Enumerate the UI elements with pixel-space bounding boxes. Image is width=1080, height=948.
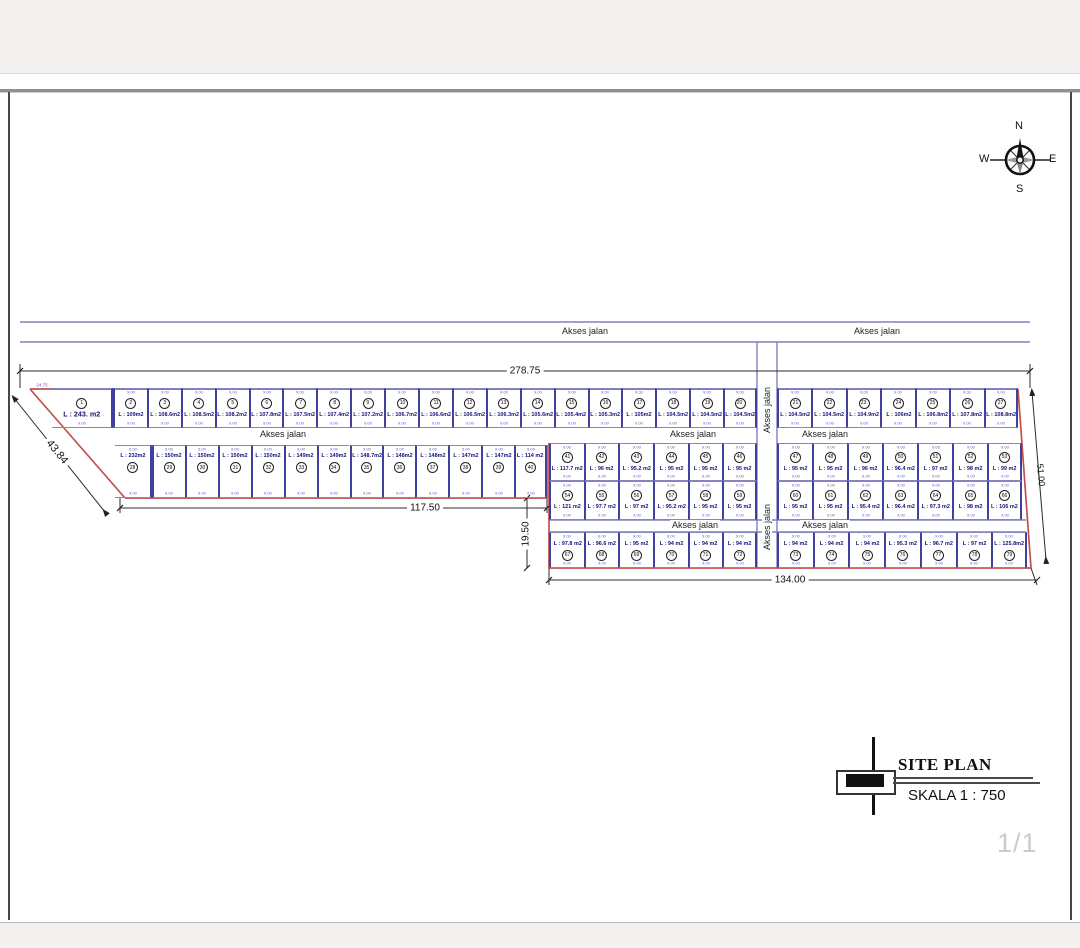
plot-number-badge: 78	[969, 550, 980, 561]
cell-top-dim: 9.00	[702, 483, 710, 487]
plot-number-badge: 24	[893, 398, 904, 409]
plot-number-badge: 69	[631, 550, 642, 561]
plot-number-badge: 23	[859, 398, 870, 409]
plot-area-label: L : 125.8m2	[994, 541, 1024, 547]
cell-top-dim: 9.00	[963, 390, 971, 394]
plot-cell-23: 9.0023L : 104.9m29.00	[846, 388, 880, 428]
plot-cell-15: 9.0015L : 105.4m29.00	[554, 388, 588, 428]
plot-area-label: L : 150m2	[157, 453, 182, 459]
plot-area-label: L : 94 m2	[855, 541, 879, 547]
cell-bottom-dim: 9.00	[534, 421, 542, 425]
plot-number-badge: 73	[790, 550, 801, 561]
plot-number-badge: 64	[930, 490, 941, 501]
plot-cell-27: 9.0027L : 108.8m29.00	[984, 388, 1018, 428]
plot-cell-52: 9.0052L : 98 m29.00	[952, 443, 987, 481]
plot-cell-30: 9.0030L : 150m29.00	[185, 445, 218, 498]
plot-area-label: L : 117.7 m2	[552, 466, 583, 472]
plot-area-label: L : 97 m2	[963, 541, 987, 547]
cell-bottom-dim: 9.00	[598, 513, 606, 517]
cell-bottom-dim: 9.00	[500, 421, 508, 425]
plot-area-label: L : 150m2	[256, 453, 281, 459]
plot-cell-3: 9.003L : 108.6m29.00	[147, 388, 181, 428]
plot-cell-50: 9.0050L : 96.4 m29.00	[882, 443, 917, 481]
plot-cell-32: 9.0032L : 150m29.00	[251, 445, 284, 498]
cell-bottom-dim: 9.00	[736, 421, 744, 425]
plot-area-label: L : 108.5m2	[184, 412, 214, 418]
plot-cell-56: 9.0056L : 97 m29.00	[618, 481, 653, 520]
cell-top-dim: 9.00	[462, 447, 470, 451]
cell-top-dim: 9.00	[598, 445, 606, 449]
cell-bottom-dim: 9.00	[598, 561, 606, 565]
plot-cell-48: 9.0048L : 95 m29.00	[812, 443, 847, 481]
plot-area-label: L : 107.2m2	[353, 412, 383, 418]
plot-area-label: L : 104.5m2	[815, 412, 845, 418]
plot-number-badge: 44	[666, 452, 677, 463]
plot-cell-39: 9.0039L : 147m29.00	[481, 445, 514, 498]
plot-number-badge: 12	[464, 398, 475, 409]
cell-bottom-dim: 9.00	[929, 421, 937, 425]
plot-number-badge: 22	[824, 398, 835, 409]
plot-area-label: L : 105.4m2	[557, 412, 587, 418]
plot-number-badge: 25	[927, 398, 938, 409]
plot-area-label: L : 99 m2	[993, 466, 1017, 472]
plot-cell-73: 9.0073L : 94 m29.00	[777, 532, 813, 568]
plot-cell-61: 9.0061L : 95 m29.00	[812, 481, 847, 520]
plot-cell-43: 9.0043L : 95.2 m29.00	[618, 443, 653, 481]
cell-top-dim: 9.00	[534, 390, 542, 394]
cell-top-dim: 9.00	[195, 390, 203, 394]
plot-area-label: L : 104.9m2	[849, 412, 879, 418]
plot-number-badge: 31	[230, 462, 241, 473]
plot-area-label: L : 108.8m2	[986, 412, 1016, 418]
road-label: Akses jalan	[800, 429, 850, 439]
cell-top-dim: 9.00	[495, 447, 503, 451]
plot-number-badge: 63	[895, 490, 906, 501]
plot-area-label: L : 121 m2	[554, 504, 581, 510]
plot-area-label: L : 105.3m2	[591, 412, 621, 418]
plot-number-badge: 50	[895, 452, 906, 463]
plot-area-label: L : 150m2	[190, 453, 215, 459]
plot-number-badge: 14	[532, 398, 543, 409]
cell-top-dim: 9.00	[598, 483, 606, 487]
cell-top-dim: 9.00	[563, 445, 571, 449]
plot-area-label: L : 96.4 m2	[886, 504, 914, 510]
plot-area-label: L : 94 m2	[784, 541, 808, 547]
plot-number-badge: 4	[193, 398, 204, 409]
plot-number-badge: 45	[700, 452, 711, 463]
cell-top-dim: 9.00	[792, 445, 800, 449]
road-label: Akses jalan	[258, 429, 308, 439]
plot-area-label: L : 107.5m2	[285, 412, 315, 418]
dim-left-diagonal: 43.84	[42, 435, 72, 469]
cell-bottom-dim: 9.00	[161, 421, 169, 425]
plot-number-badge: 57	[666, 490, 677, 501]
plot-area-label: L : 96 m2	[590, 466, 614, 472]
cell-bottom-dim: 9.00	[860, 421, 868, 425]
cell-top-dim: 9.00	[935, 534, 943, 538]
plot-area-label: L : 95 m2	[625, 541, 649, 547]
plot-area-label: L : 95 m2	[694, 466, 718, 472]
plot-number-badge: 38	[460, 462, 471, 473]
cell-bottom-dim: 9.00	[667, 561, 675, 565]
plot-number-badge: 71	[700, 550, 711, 561]
cell-top-dim: 9.00	[364, 390, 372, 394]
cell-bottom-dim: 9.00	[195, 421, 203, 425]
road-label: Akses jalan	[800, 520, 850, 530]
plot-cell-74: 9.0074L : 94 m29.00	[813, 532, 849, 568]
plot-area-label: L : 97 m2	[625, 504, 649, 510]
plot-area-label: L : 95.2 m2	[622, 466, 650, 472]
cell-top-dim: 9.00	[161, 390, 169, 394]
cell-top-dim: 9.00	[792, 483, 800, 487]
plot-number-badge: 27	[995, 398, 1006, 409]
plot-cell-4: 9.004L : 108.5m29.00	[181, 388, 215, 428]
cell-bottom-dim: 9.00	[527, 491, 535, 495]
cell-bottom-dim: 9.00	[736, 513, 744, 517]
plot-cell-29: 9.0029L : 150m29.00	[152, 445, 185, 498]
plot-area-label: L : 94 m2	[820, 541, 844, 547]
site-plan-drawing: 1L : 243. m29.009.002L : 109m29.009.003L…	[0, 0, 1080, 947]
plot-number-badge: 35	[361, 462, 372, 473]
plot-number-badge: 68	[596, 550, 607, 561]
cell-top-dim: 9.00	[330, 390, 338, 394]
plot-number-badge: 46	[734, 452, 745, 463]
plot-area-label: L : 95 m2	[784, 466, 808, 472]
plot-number-badge: 20	[735, 398, 746, 409]
cell-top-dim: 9.00	[1001, 445, 1009, 449]
cell-top-dim: 9.00	[895, 390, 903, 394]
compass-south-label: S	[1016, 183, 1023, 195]
plot-area-label: L : 148.7m2	[352, 453, 382, 459]
plot-number-badge: 34	[329, 462, 340, 473]
plot-area-label: L : 105m2	[627, 412, 652, 418]
cell-bottom-dim: 9.00	[78, 421, 86, 425]
plot-number-badge: 6	[261, 398, 272, 409]
plot-area-label: L : 94 m2	[694, 541, 718, 547]
title-block-logo-fill	[846, 774, 884, 787]
plot-cell-16: 9.0016L : 105.3m29.00	[588, 388, 622, 428]
cell-bottom-dim: 9.00	[330, 491, 338, 495]
plot-area-label: L : 96.6 m2	[588, 541, 616, 547]
cell-top-dim: 9.00	[899, 534, 907, 538]
plot-number-badge: 13	[498, 398, 509, 409]
plot-area-label: L : 109m2	[118, 412, 143, 418]
plot-area-label: L : 108.6m2	[150, 412, 180, 418]
cell-top-dim: 9.00	[667, 445, 675, 449]
cell-bottom-dim: 9.00	[166, 491, 174, 495]
plot-number-badge: 55	[596, 490, 607, 501]
plot-number-badge: 19	[702, 398, 713, 409]
cell-bottom-dim: 9.00	[330, 421, 338, 425]
cell-top-dim: 9.00	[264, 447, 272, 451]
cell-bottom-dim: 9.00	[297, 491, 305, 495]
plot-cell-9: 9.009L : 107.2m29.00	[350, 388, 384, 428]
cell-bottom-dim: 9.00	[598, 474, 606, 478]
cell-bottom-dim: 9.00	[932, 513, 940, 517]
cell-top-dim: 9.00	[330, 447, 338, 451]
plot-number-badge: 5	[227, 398, 238, 409]
cell-bottom-dim: 9.00	[967, 474, 975, 478]
plot-number-badge: 70	[666, 550, 677, 561]
plot-area-label: L : 106.6m2	[421, 412, 451, 418]
plot-cell-6: 9.006L : 107.8m29.00	[249, 388, 283, 428]
drawing-scale: SKALA 1 : 750	[908, 787, 1006, 804]
cell-bottom-dim: 9.00	[899, 561, 907, 565]
cell-top-dim: 9.00	[792, 534, 800, 538]
cell-top-dim: 9.00	[702, 534, 710, 538]
cell-bottom-dim: 9.00	[667, 513, 675, 517]
plot-number-badge: 16	[600, 398, 611, 409]
plot-cell-18: 9.0018L : 104.5m29.00	[655, 388, 689, 428]
plot-cell-31: 9.0031L : 150m29.00	[218, 445, 251, 498]
plot-cell-38: 9.0038L : 147m29.00	[448, 445, 481, 498]
cell-top-dim: 9.00	[703, 390, 711, 394]
cell-bottom-dim: 9.00	[667, 474, 675, 478]
cell-top-dim: 9.00	[827, 483, 835, 487]
cell-bottom-dim: 9.00	[1005, 561, 1013, 565]
cell-top-dim: 9.00	[929, 390, 937, 394]
plot-cell-17: 9.0017L : 105m29.00	[621, 388, 655, 428]
plot-number-badge: 65	[965, 490, 976, 501]
plot-cell-24: 9.0024L : 106m29.00	[880, 388, 914, 428]
plot-number-badge: 32	[263, 462, 274, 473]
plot-cell-75: 9.0075L : 94 m29.00	[848, 532, 884, 568]
plot-area-label: L : 104.5m2	[725, 412, 755, 418]
plot-cell-14: 9.0014L : 105.6m29.00	[520, 388, 554, 428]
plot-area-label: L : 96.7 m2	[925, 541, 953, 547]
plot-cell-68: 9.0068L : 96.6 m29.00	[584, 532, 619, 568]
cell-top-dim: 9.00	[263, 390, 271, 394]
cell-bottom-dim: 9.00	[398, 421, 406, 425]
cell-bottom-dim: 9.00	[198, 491, 206, 495]
cell-bottom-dim: 9.00	[792, 474, 800, 478]
cell-top-dim: 9.00	[633, 534, 641, 538]
road-label-vertical: Akses jalan	[762, 502, 772, 552]
plot-cell-41: 9.0041L : 117.7 m29.00	[549, 443, 584, 481]
cell-bottom-dim: 9.00	[736, 561, 744, 565]
plot-area-label: L : 95 m2	[728, 504, 752, 510]
cell-bottom-dim: 9.00	[602, 421, 610, 425]
plot-area-label: L : 106.3m2	[489, 412, 519, 418]
cell-top-dim: 9.00	[563, 534, 571, 538]
cell-bottom-dim: 9.00	[429, 491, 437, 495]
plot-area-label: L : 106m2	[886, 412, 911, 418]
cell-bottom-dim: 9.00	[967, 513, 975, 517]
cell-top-dim: 9.00	[827, 445, 835, 449]
plot-number-badge: 26	[962, 398, 973, 409]
cell-top-dim: 9.00	[862, 483, 870, 487]
cell-top-dim: 9.00	[997, 390, 1005, 394]
plot-number-badge: 62	[860, 490, 871, 501]
plot-number-badge: 18	[668, 398, 679, 409]
plot-area-label: L : 95 m2	[659, 466, 683, 472]
plot-number-badge: 2	[125, 398, 136, 409]
plot-number-badge: 1	[76, 398, 87, 409]
cell-top-dim: 9.00	[229, 390, 237, 394]
cell-top-dim: 9.00	[791, 390, 799, 394]
plot-cell-66: 9.0066L : 106 m29.00	[987, 481, 1022, 520]
cell-bottom-dim: 9.00	[364, 421, 372, 425]
cell-bottom-dim: 9.00	[263, 421, 271, 425]
plot-cell-51: 9.0051L : 97 m29.00	[917, 443, 952, 481]
plot-cell-7: 9.007L : 107.5m29.00	[282, 388, 316, 428]
road-label: Akses jalan	[670, 520, 720, 530]
cell-top-dim: 9.00	[363, 447, 371, 451]
plot-cell-64: 9.0064L : 97.3 m29.00	[917, 481, 952, 520]
cell-bottom-dim: 9.00	[895, 421, 903, 425]
cell-bottom-dim: 9.00	[669, 421, 677, 425]
plot-cell-67: 9.0067L : 97.8 m29.00	[549, 532, 584, 568]
plot-cell-76: 9.0076L : 95.3 m29.00	[884, 532, 920, 568]
plot-cell-11: 9.0011L : 106.6m29.00	[418, 388, 452, 428]
cell-bottom-dim: 9.00	[231, 491, 239, 495]
plot-area-label: L : 97.8 m2	[553, 541, 581, 547]
plot-cell-44: 9.0044L : 95 m29.00	[653, 443, 688, 481]
plot-number-badge: 10	[397, 398, 408, 409]
plot-area-label: L : 148m2	[420, 453, 445, 459]
plot-area-label: L : 106.8m2	[918, 412, 948, 418]
cell-bottom-dim: 9.00	[563, 561, 571, 565]
plot-number-badge: 77	[933, 550, 944, 561]
plot-number-badge: 33	[296, 462, 307, 473]
plot-area-label: L : 96 m2	[854, 466, 878, 472]
plot-number-badge: 56	[631, 490, 642, 501]
plot-cell-25: 9.0025L : 106.8m29.00	[915, 388, 949, 428]
plot-cell-8: 9.008L : 107.4m29.00	[316, 388, 350, 428]
dim-right-diagonal: 51.00	[1035, 460, 1047, 489]
plot-cell-26: 9.0026L : 107.8m29.00	[949, 388, 983, 428]
plot-cell-22: 9.0022L : 104.5m29.00	[811, 388, 845, 428]
cell-top-dim: 9.00	[398, 390, 406, 394]
plot-cell-54: 9.0054L : 121 m29.00	[549, 481, 584, 520]
cell-bottom-dim: 9.00	[827, 513, 835, 517]
plot-number-badge: 66	[999, 490, 1010, 501]
cell-bottom-dim: 9.00	[702, 561, 710, 565]
cell-top-dim: 9.00	[297, 447, 305, 451]
plot-area-label: L : 104.5m2	[780, 412, 810, 418]
dim-left-bottom: 117.50	[407, 503, 443, 514]
plot-cell-36: 9.0036L : 148m29.00	[382, 445, 415, 498]
plot-number-badge: 59	[734, 490, 745, 501]
cell-top-dim: 9.00	[1001, 483, 1009, 487]
cell-top-dim: 9.00	[736, 390, 744, 394]
plot-number-badge: 40	[525, 462, 536, 473]
plot-area-label: L : 148m2	[387, 453, 412, 459]
cell-top-dim: 9.00	[897, 445, 905, 449]
plot-cell-63: 9.0063L : 96.4 m29.00	[882, 481, 917, 520]
plot-number-badge: 54	[562, 490, 573, 501]
plot-area-label: L : 95.2 m2	[657, 504, 685, 510]
cell-top-dim: 9.00	[127, 390, 135, 394]
plot-area-label: L : 147m2	[486, 453, 511, 459]
plot-area-label: L : 94 m2	[659, 541, 683, 547]
plot-number-badge: 76	[897, 550, 908, 561]
plot-cell-79: 9.0079L : 125.8m29.00	[991, 532, 1027, 568]
cell-bottom-dim: 9.00	[363, 491, 371, 495]
plot-area-label: L : 95 m2	[784, 504, 808, 510]
road-label: Akses jalan	[668, 429, 718, 439]
cell-top-dim: 9.00	[563, 483, 571, 487]
cell-top-dim: 9.00	[568, 390, 576, 394]
plot-number-badge: 15	[566, 398, 577, 409]
plot-cell-5: 9.005L : 108.2m29.00	[215, 388, 249, 428]
plot-number-badge: 79	[1004, 550, 1015, 561]
cell-bottom-dim: 9.00	[702, 474, 710, 478]
drawing-title: SITE PLAN	[898, 755, 992, 775]
plot-cell-69: 9.0069L : 95 m29.00	[618, 532, 653, 568]
plot-cell-13: 9.0013L : 106.3m29.00	[486, 388, 520, 428]
plot-number-badge: 42	[596, 452, 607, 463]
plot-cell-33: 9.0033L : 149m29.00	[284, 445, 317, 498]
plot-area-label: L : 95 m2	[728, 466, 752, 472]
cell-top-dim: 9.00	[970, 534, 978, 538]
road-label: Akses jalan	[560, 326, 610, 336]
cell-bottom-dim: 9.00	[702, 513, 710, 517]
cell-top-dim: 9.00	[736, 534, 744, 538]
plot-area-label: L : 106.5m2	[455, 412, 485, 418]
cell-bottom-dim: 9.00	[495, 491, 503, 495]
plot-area-label: L : 107.4m2	[319, 412, 349, 418]
dim-top-width: 278.75	[507, 366, 544, 377]
plot-number-badge: 74	[826, 550, 837, 561]
plot-cell-72: 9.0072L : 94 m29.00	[722, 532, 757, 568]
plot-number-badge: 36	[394, 462, 405, 473]
plot-area-label: L : 106 m2	[991, 504, 1018, 510]
cell-bottom-dim: 9.00	[563, 474, 571, 478]
cell-bottom-dim: 9.00	[296, 421, 304, 425]
cell-top-dim: 9.00	[967, 483, 975, 487]
cell-bottom-dim: 9.00	[229, 421, 237, 425]
plot-cell-77: 9.0077L : 96.7 m29.00	[920, 532, 956, 568]
title-underline	[893, 777, 1033, 779]
plot-number-badge: 7	[295, 398, 306, 409]
plot-area-label: L : 98 m2	[959, 504, 983, 510]
plot-number-badge: 75	[862, 550, 873, 561]
plot-area-label: L : 243. m2	[63, 411, 100, 418]
cell-bottom-dim: 9.00	[396, 491, 404, 495]
plot-number-badge: 58	[700, 490, 711, 501]
plot-cell-46: 9.0046L : 95 m29.00	[722, 443, 757, 481]
cell-bottom-dim: 9.00	[792, 561, 800, 565]
plot-area-label: L : 97.3 m2	[921, 504, 949, 510]
plot-area-label: L : 95 m2	[819, 466, 843, 472]
plot-cell-78: 9.0078L : 97 m29.00	[956, 532, 992, 568]
cell-bottom-dim: 9.00	[635, 421, 643, 425]
plot-number-badge: 72	[734, 550, 745, 561]
cell-bottom-dim: 9.00	[791, 421, 799, 425]
compass-west-label: W	[979, 153, 989, 165]
cell-top-dim: 9.00	[466, 390, 474, 394]
plot-area-label: L : 96.4 m2	[886, 466, 914, 472]
plot-area-label: L : 232m2	[120, 453, 145, 459]
plot-area-label: L : 94 m2	[728, 541, 752, 547]
plot-cell-59: 9.0059L : 95 m29.00	[722, 481, 757, 520]
cell-bottom-dim: 9.00	[466, 421, 474, 425]
plot-number-badge: 29	[164, 462, 175, 473]
plot-number-badge: 52	[965, 452, 976, 463]
title-underline	[893, 782, 1040, 784]
cell-top-dim: 9.00	[527, 447, 535, 451]
plot-number-badge: 3	[159, 398, 170, 409]
plot-cell-42: 9.0042L : 96 m29.00	[584, 443, 619, 481]
cell-bottom-dim: 9.00	[264, 491, 272, 495]
cell-bottom-dim: 9.00	[462, 491, 470, 495]
plot-number-badge: 41	[562, 452, 573, 463]
plot-cell-40: 9.0040L : 114 m29.00	[514, 445, 547, 498]
plot-number-badge: 37	[427, 462, 438, 473]
cell-bottom-dim: 9.00	[568, 421, 576, 425]
cell-bottom-dim: 9.00	[826, 421, 834, 425]
